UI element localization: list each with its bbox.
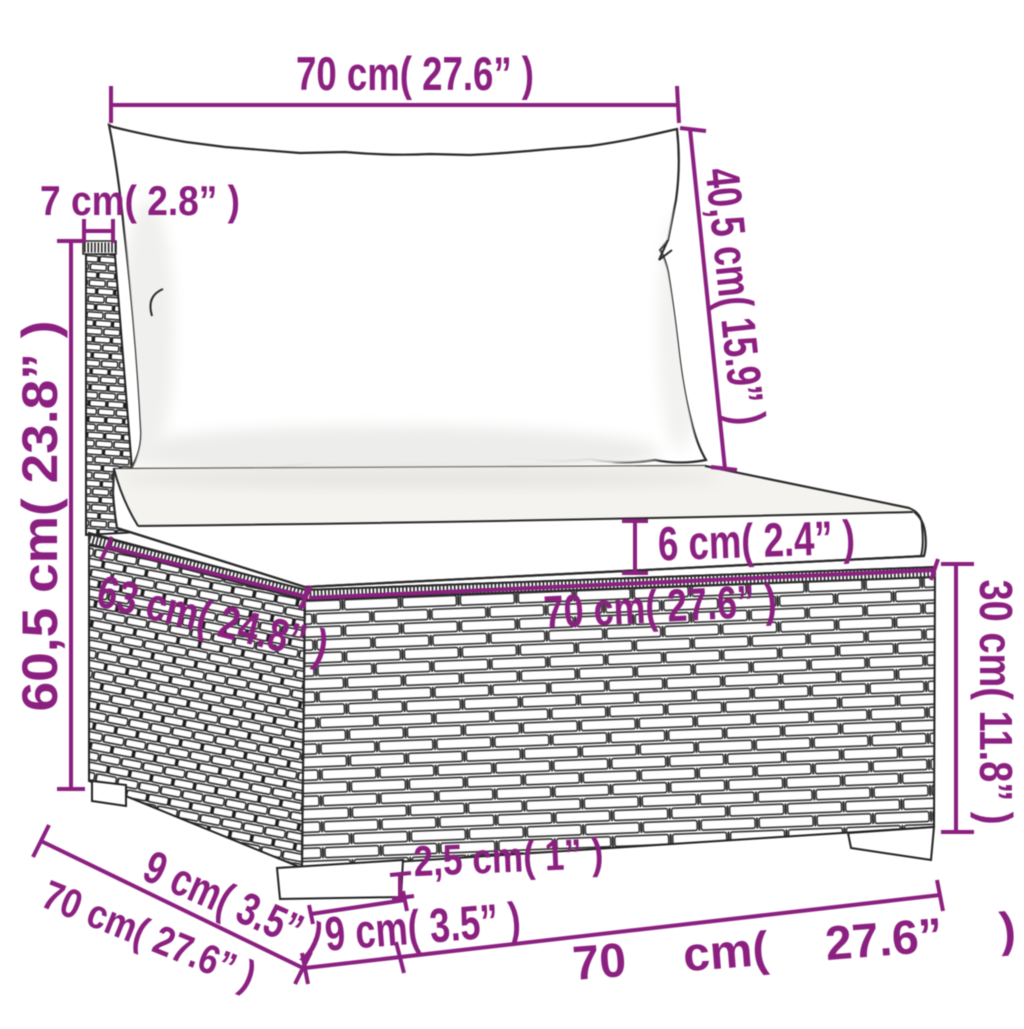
svg-text:70 cm( 27.6” ): 70 cm( 27.6” )	[296, 47, 534, 100]
svg-text:30 cm( 11.8” ): 30 cm( 11.8” )	[970, 580, 1022, 825]
svg-text:7 cm( 2.8” ): 7 cm( 2.8” )	[40, 177, 240, 224]
svg-text:60,5 cm( 23.8” ): 60,5 cm( 23.8” )	[12, 321, 68, 712]
svg-text:6 cm( 2.4” ): 6 cm( 2.4” )	[657, 512, 856, 572]
svg-text:2,5 cm( 1” ): 2,5 cm( 1” )	[412, 830, 604, 886]
